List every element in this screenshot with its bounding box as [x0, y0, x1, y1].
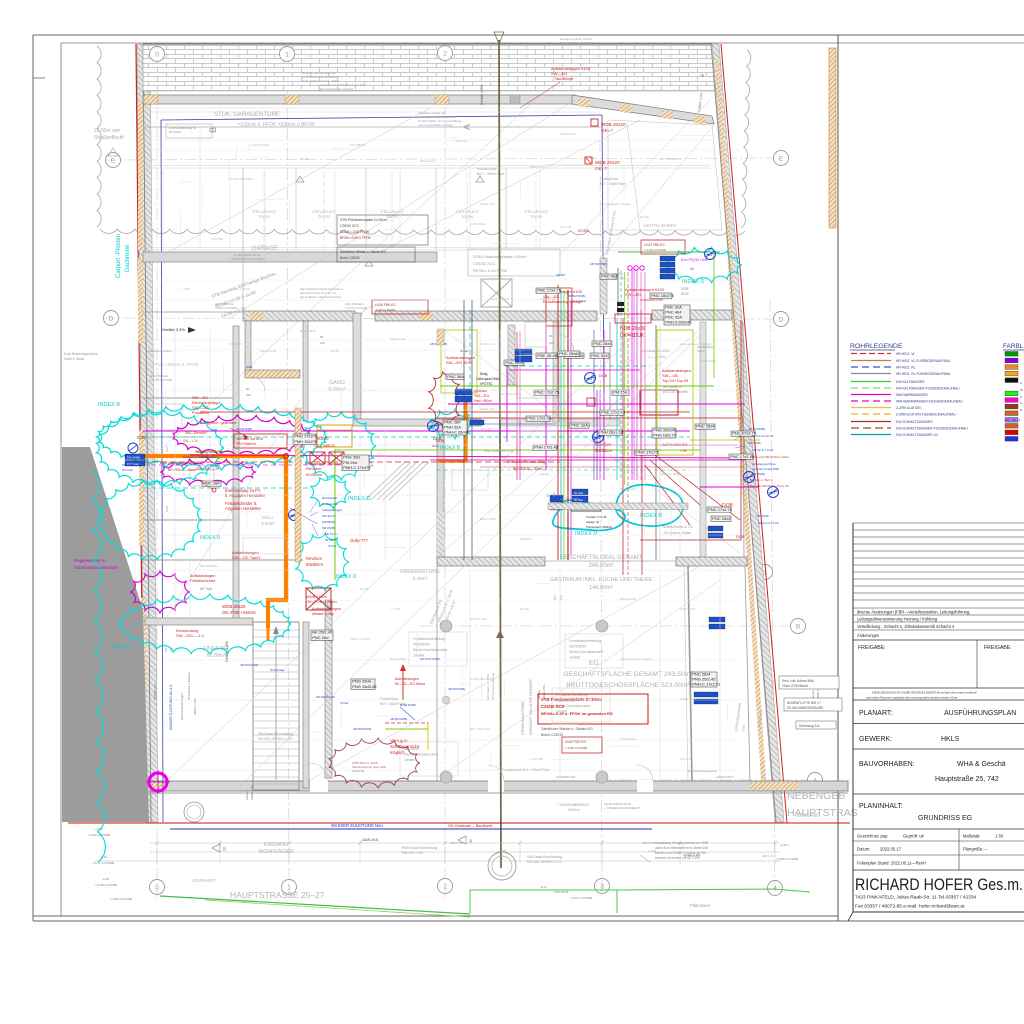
svg-text:INDEX D: INDEX D	[336, 574, 357, 580]
svg-text:BFOK=-0.00 u. FFOK: BFOK=-0.00 u. FFOK	[340, 236, 372, 240]
svg-text:GRUNDRISS EG: GRUNDRISS EG	[918, 815, 972, 822]
svg-text:DCB: DCB	[736, 534, 745, 539]
svg-text:S1: S1	[771, 491, 775, 495]
svg-text:AB Top xx: AB Top xx	[325, 532, 338, 536]
svg-text:B-ex PS(?)D I-Unk: B-ex PS(?)D I-Unk	[681, 258, 708, 262]
svg-text:INDEX B: INDEX B	[98, 402, 120, 408]
svg-text:Top.03+Top.05: Top.03+Top.05	[662, 378, 689, 383]
svg-text:AR Top0: AR Top0	[200, 587, 212, 591]
svg-text:TOP04: TOP04	[461, 215, 473, 219]
svg-text:#100: #100	[432, 444, 439, 448]
svg-text:Änderungen: Änderungen	[857, 633, 880, 638]
svg-text:=-0.57 zu P1000: =-0.57 zu P1000	[570, 896, 592, 900]
svg-text:80: 80	[320, 335, 324, 339]
svg-text:SW-SCHMUTZWASSER: SW-SCHMUTZWASSER	[896, 420, 933, 424]
svg-text:S: S	[1020, 395, 1022, 399]
svg-text:SW—Kanal Ø #150: SW—Kanal Ø #150	[484, 449, 514, 453]
svg-text:2069: 2069	[246, 365, 253, 369]
svg-text:Dämmung 14c: Dämmung 14c	[799, 724, 820, 728]
svg-text:Rohrbelüfter: Rohrbelüfter	[322, 496, 337, 500]
svg-text:BxT = 40cm/70cm: BxT = 40cm/70cm	[477, 172, 505, 176]
svg-text:DOB: DOB	[681, 287, 689, 291]
svg-text:Z-ZIRKULATION: Z-ZIRKULATION	[896, 406, 921, 410]
svg-text:Lüftungsanl 5&M: Lüftungsanl 5&M	[476, 377, 500, 381]
svg-text:+2cm horizontaler Lüftung: +2cm horizontaler Lüftung	[318, 87, 353, 91]
svg-text:Z-ZIRKULATION-FUSSBODENAUFBAU: Z-ZIRKULATION-FUSSBODENAUFBAU	[896, 412, 956, 416]
svg-text:Pflanzbeet: Pflanzbeet	[690, 903, 711, 908]
svg-text:200: 200	[246, 393, 251, 397]
svg-text:+ STREIFENFUNDAMENT: + STREIFENFUNDAMENT	[229, 257, 265, 261]
svg-text:SW—EG: SW—EG	[474, 394, 489, 398]
svg-text:VK-Gebäude – Bauflucht: VK-Gebäude – Bauflucht	[448, 823, 493, 828]
svg-text:=-0.45 zu P1000: =-0.45 zu P1000	[150, 378, 172, 382]
svg-text:K: K	[1020, 381, 1022, 385]
svg-text:AB SM B DN(B): AB SM B DN(B)	[420, 657, 440, 661]
svg-text:FARBL: FARBL	[1003, 343, 1024, 350]
svg-text:HW 0.15: HW 0.15	[762, 854, 773, 858]
svg-text:Jordahl: Jordahl	[404, 758, 415, 762]
svg-text:OK=?: OK=?	[595, 166, 607, 171]
svg-text:Verteilleitung , Schacht 1, Zi: Verteilleitung , Schacht 1, Zirkulations…	[857, 624, 955, 629]
svg-text:lt. Angaben Hersteller: lt. Angaben Hersteller	[225, 493, 266, 498]
svg-text:AB SM DN100: AB SM DN100	[353, 727, 372, 731]
svg-text:<—— 1.5%: <—— 1.5%	[648, 355, 665, 359]
svg-text:SM DN(B): SM DN(B)	[748, 441, 761, 445]
svg-text:+-0.00 FBK: +-0.00 FBK	[620, 359, 633, 363]
svg-text:PNC 16x275: PNC 16x275	[651, 293, 674, 298]
svg-text:C25/30 XC3: C25/30 XC3	[473, 261, 496, 266]
svg-text:AB SM DN(B): AB SM DN(B)	[236, 427, 252, 431]
svg-text:Verzug unter SM 02 Dom. H Bauf: Verzug unter SM 02 Dom. H Bauf.	[750, 455, 789, 459]
svg-text:570: 570	[559, 595, 563, 600]
svg-text:Aspigs: 43: Aspigs: 43	[586, 520, 600, 524]
svg-text:PNC 26x4: PNC 26x4	[593, 341, 612, 346]
svg-text:2: 2	[443, 50, 447, 57]
svg-text:Anweg Aller SM OK Top TG A u O: Anweg Aller SM OK Top TG A u OK	[748, 484, 789, 488]
svg-text:?.05: ?.05	[680, 449, 687, 453]
svg-text:OK=FOK+346cm: OK=FOK+346cm	[222, 610, 256, 615]
svg-text:Gefälle 2.0%: Gefälle 2.0%	[480, 84, 484, 105]
svg-text:PM 25d: PM 25d	[613, 390, 627, 395]
svg-text:NDB 20x30: NDB 20x30	[620, 326, 646, 332]
svg-text:2: 2	[443, 883, 447, 890]
svg-text:Gefälle 3.3%: Gefälle 3.3%	[162, 327, 185, 332]
svg-text:Schmutzwasserkanal?: Schmutzwasserkanal?	[74, 565, 118, 570]
svg-text:RFOK=-0.20 FFOK: RFOK=-0.20 FFOK	[473, 268, 508, 273]
svg-text:+ STREIFENFUNDAMENT: + STREIFENFUNDAMENT	[604, 806, 640, 810]
svg-text:KW-KALTWASSER: KW-KALTWASSER	[896, 380, 925, 384]
svg-text:Schüttung nicht: Schüttung nicht	[390, 744, 420, 749]
svg-text:60x60cm: 60x60cm	[306, 562, 324, 567]
svg-text:WASSER ZULEITUNG Neu: WASSER ZULEITUNG Neu	[331, 823, 383, 828]
svg-text:GAS #10: GAS #10	[362, 837, 379, 842]
svg-text:Hauptstraße 25, 742: Hauptstraße 25, 742	[935, 776, 999, 783]
svg-text:Knick in Wand: Knick in Wand	[64, 357, 84, 361]
svg-text:SM DN(B): SM DN(B)	[752, 472, 765, 476]
svg-text:ca. 500x100x100cm: ca. 500x100x100cm	[230, 177, 253, 181]
svg-text:Frostschürze: Frostschürze	[600, 177, 619, 181]
svg-text:PNH 19/2.75: PNH 19/2.75	[653, 432, 677, 437]
svg-text:INDEX D: INDEX D	[112, 645, 133, 651]
svg-text:Praxismaps: 150kg/h: Praxismaps: 150kg/h	[586, 525, 613, 529]
svg-text:Decke Durchstanzbew.: Decke Durchstanzbew.	[404, 753, 439, 757]
svg-text:PNC 17x2.75: PNC 17x2.75	[535, 390, 560, 395]
svg-text:20cm STB-Wand: 20cm STB-Wand	[782, 684, 808, 688]
svg-text:=-0.45 zu P1000: =-0.45 zu P1000	[490, 297, 510, 301]
svg-text:HKLS: HKLS	[941, 736, 960, 743]
svg-text:Beton C25/30: Beton C25/30	[300, 329, 316, 333]
svg-text:BL Dom. u. Berl. C: BL Dom. u. Berl. C	[750, 478, 773, 482]
svg-text:9.45m²: 9.45m²	[413, 576, 428, 581]
svg-text:KW-KALTWASSER-FUSSBODENAUFBAU: KW-KALTWASSER-FUSSBODENAUFBAU	[896, 386, 960, 390]
svg-text:BK=RDUK—30cm: BK=RDUK—30cm	[168, 468, 196, 472]
svg-text:PNC 25x4: PNC 25x4	[696, 424, 715, 429]
svg-text:DN 100: DN 100	[640, 215, 649, 219]
svg-text:RDUK=-0.00 FFOK: RDUK=-0.00 FFOK	[340, 230, 370, 234]
svg-text:GASTRAUM INKL. KÜCHE UND THEKE: GASTRAUM INKL. KÜCHE UND THEKE	[550, 576, 652, 583]
svg-text:-0.16: -0.16	[102, 877, 109, 881]
svg-text:ca. 500x100x100cm: ca. 500x100x100cm	[520, 352, 543, 356]
svg-text:WDB 20x20: WDB 20x20	[601, 122, 626, 127]
svg-text:ca. 500x100x100cm: ca. 500x100x100cm	[470, 677, 493, 681]
svg-text:Straßenflucht: Straßenflucht	[94, 135, 124, 141]
svg-text:Bayktrag Schale 90: Bayktrag Schale 90	[196, 450, 222, 454]
svg-text:=-0.69: =-0.69	[648, 849, 656, 853]
svg-text:MÜLL: MÜLL	[262, 514, 275, 520]
svg-text:PNH-C 17x3.73: PNH-C 17x3.73	[692, 681, 721, 686]
svg-text:50x50cm: 50x50cm	[306, 472, 323, 477]
svg-text:SM DN(B): SM DN(B)	[322, 526, 335, 530]
svg-text:±0.00 FBK-EG: ±0.00 FBK-EG	[644, 243, 665, 247]
svg-text:0: 0	[155, 884, 159, 891]
svg-text:Frostschürze: Frostschürze	[380, 697, 399, 701]
svg-text:WDB 20x20: WDB 20x20	[222, 604, 246, 609]
svg-text:45 SM D: 45 SM D	[325, 538, 336, 542]
svg-text:Technik #100 nach Zuluft: Technik #100 nach Zuluft	[560, 41, 591, 45]
svg-text:SM DN(B): SM DN(B)	[756, 514, 769, 518]
svg-text:200: 200	[549, 341, 554, 345]
svg-text:Carport -Pfosten: Carport -Pfosten	[116, 234, 122, 278]
svg-text:S5: S5	[708, 253, 712, 257]
svg-text:+-0.00 FBK: +-0.00 FBK	[210, 237, 223, 241]
svg-text:FREIGABE:: FREIGABE:	[858, 645, 886, 651]
svg-text:=-0.49 zu P1080: =-0.49 zu P1080	[95, 883, 117, 887]
svg-text:Gefälle 2.5%: Gefälle 2.5%	[250, 784, 254, 800]
svg-text:HUK FBK-EG: HUK FBK-EG	[350, 143, 366, 147]
svg-text:045 FFOK: 045 FFOK	[230, 342, 242, 346]
svg-text:-0.11 z: -0.11 z	[780, 843, 789, 847]
svg-text:D: D	[109, 315, 114, 322]
svg-text:7423 PINKAFELD, Julius-Raab-St: 7423 PINKAFELD, Julius-Raab-Str. 11 Tel.…	[855, 895, 976, 901]
svg-text:W: W	[1020, 388, 1023, 392]
svg-text:PNC 36A: PNC 36A	[447, 374, 464, 379]
svg-text:PN UNMD: PN UNMD	[127, 456, 140, 460]
svg-text:-0.08 FFOK: -0.08 FFOK	[553, 890, 569, 894]
svg-text:SW-KS=-1.40: SW-KS=-1.40	[560, 132, 576, 136]
svg-text:diverse Änderungen (FBH—Vertei: diverse Änderungen (FBH—Verteilerpositio…	[857, 610, 970, 615]
svg-text:ROHRLEGENDE: ROHRLEGENDE	[850, 343, 903, 350]
svg-text:S: S	[1020, 401, 1022, 405]
svg-text:-0.17: -0.17	[540, 885, 547, 889]
svg-text:zu 1.OG verzieh: zu 1.OG verzieh	[663, 390, 688, 394]
svg-text:A: A	[462, 124, 472, 130]
svg-text:Anpassung Gehweg bereits vor H: Anpassung Gehweg bereits vor HS29	[655, 841, 709, 845]
svg-text:ZU NACHBARGEBÄUDE: ZU NACHBARGEBÄUDE	[787, 706, 823, 710]
svg-text:=310cm ü. FFOK =330cm ü BFOK: =310cm ü. FFOK =330cm ü BFOK	[238, 122, 315, 128]
svg-text:BL Top G.A D US: BL Top G.A D US	[752, 434, 774, 438]
svg-text:Revision: Revision	[306, 556, 323, 561]
svg-text:Kabelnetzschalter: Kabelnetzschalter	[148, 349, 172, 353]
svg-text:AB SM DN 100: AB SM DN 100	[316, 695, 335, 699]
svg-text:#POTSC: #POTSC	[480, 382, 493, 386]
svg-text:+2cm horizontaler Lüftung: +2cm horizontaler Lüftung	[418, 123, 453, 127]
svg-text:=-0.45 zu P1000: =-0.45 zu P1000	[565, 746, 587, 750]
svg-text:RDUK=+3.06: RDUK=+3.06	[390, 337, 406, 341]
svg-text:DN 150: DN 150	[330, 349, 339, 353]
svg-text:1667: 1667	[165, 445, 169, 452]
svg-text:Revision: Revision	[306, 466, 321, 471]
svg-text:=325cm ü. FFOK: =325cm ü. FFOK	[350, 637, 370, 641]
svg-text:IS Nax: IS Nax	[328, 544, 337, 548]
svg-text:2022.05.17: 2022.05.17	[880, 847, 902, 852]
svg-text:SW-Kanal Einmündung: SW-Kanal Einmündung	[258, 732, 293, 736]
svg-text:CD/CFTB: CD/CFTB	[352, 769, 364, 773]
svg-text:95: 95	[546, 493, 550, 497]
svg-text:PNH-3 26/G45: PNH-3 26/G45	[665, 319, 692, 324]
svg-text:HAUPTSTRASSE 25–27: HAUPTSTRASSE 25–27	[230, 890, 325, 900]
svg-text:Obenbau uml #100: Obenbau uml #100	[236, 437, 263, 441]
svg-text:Aufstan: Aufstan	[474, 389, 487, 393]
svg-text:J.B. Knast a. Erläse: J.B. Knast a. Erläse	[663, 531, 691, 535]
svg-text:045 FFOK: 045 FFOK	[450, 841, 463, 845]
svg-text:±0.06 FBK-EG: ±0.06 FBK-EG	[375, 303, 396, 307]
svg-text:BxT = 40cm/70cm: BxT = 40cm/70cm	[660, 157, 681, 161]
svg-text:2x 5x5 Staffel: 2x 5x5 Staffel	[620, 737, 636, 741]
svg-text:SW—EG #100: SW—EG #100	[446, 360, 473, 365]
svg-text:0: 0	[155, 51, 159, 58]
svg-text:STELLPLATZ: STELLPLATZ	[524, 210, 548, 214]
svg-text:Beton C25/30: Beton C25/30	[340, 256, 360, 260]
svg-text:Hsn.+Börn: Hsn.+Börn	[474, 399, 492, 403]
svg-text:DIESE ZEICHNUNG IST UNSER GEIS: DIESE ZEICHNUNG IST UNSER GEISTIGES EIGE…	[872, 691, 977, 695]
svg-text:045 FFOK: 045 FFOK	[455, 139, 467, 143]
svg-text:HUK FBK-EG: HUK FBK-EG	[540, 297, 556, 301]
svg-text:SW-Kanal Einmündung: SW-Kanal Einmündung	[527, 855, 562, 859]
svg-text:=-0.56 zu P1000: =-0.56 zu P1000	[110, 897, 132, 901]
svg-text:Gefälle 2.5%: Gefälle 2.5%	[684, 854, 701, 858]
svg-text:SW—KS=—1.25: SW—KS=—1.25	[178, 461, 198, 465]
svg-text:Ø SM DN(B): Ø SM DN(B)	[400, 703, 416, 707]
svg-text:AB SM DN(B): AB SM DN(B)	[448, 687, 465, 691]
svg-text:INDEX D: INDEX D	[200, 535, 221, 541]
svg-text:=-0.45 zu P1000: =-0.45 zu P1000	[345, 306, 367, 310]
svg-text:INDEX D: INDEX D	[575, 531, 597, 537]
svg-text:Revision: Revision	[595, 442, 612, 447]
svg-text:* AUSSENBEREICH: * AUSSENBEREICH	[558, 803, 590, 807]
svg-text:RDUK=+3.06: RDUK=+3.06	[420, 159, 436, 163]
svg-text:UK=-1.30: UK=-1.30	[560, 225, 572, 229]
svg-text:Putzstück: Putzstück	[192, 410, 209, 415]
svg-text:RW-Kanal Einmündung: RW-Kanal Einmündung	[402, 846, 437, 850]
svg-text:=-0.45 zu P1000: =-0.45 zu P1000	[250, 143, 270, 147]
svg-text:DOB: DOB	[722, 503, 734, 509]
svg-text:damit 8cm Höhendifferenz überb: damit 8cm Höhendifferenz überbrückt	[655, 846, 708, 850]
svg-text:STUK.=325cm ü. FFOK: STUK.=325cm ü. FFOK	[152, 362, 199, 367]
svg-text:Angaben Hersteller: Angaben Hersteller	[225, 506, 261, 511]
svg-text:Gehweg: Gehweg	[245, 790, 249, 800]
svg-text:WHA & Geschä: WHA & Geschä	[957, 761, 1006, 768]
svg-text:DN 150: DN 150	[520, 607, 529, 611]
svg-text:PLANINHALT:: PLANINHALT:	[859, 803, 903, 810]
svg-text:OK=RDUK: OK=RDUK	[620, 333, 645, 339]
svg-text:Lüftungsanlage lt. Angaben: Lüftungsanlage lt. Angaben	[680, 342, 712, 346]
svg-text:STB-Decke ü. BG/Gar.: STB-Decke ü. BG/Gar.	[187, 671, 191, 700]
svg-text:Gefälle 1.5%: Gefälle 1.5%	[480, 202, 496, 206]
svg-text:DN 150: DN 150	[300, 157, 309, 161]
svg-text:PNC 17x2.43: PNC 17x2.43	[527, 416, 552, 421]
svg-text:SB: SB	[596, 436, 601, 440]
svg-text:<-- 1.5%: <-- 1.5%	[390, 607, 401, 611]
svg-text:-0.45 zu P1000: -0.45 zu P1000	[375, 308, 396, 312]
svg-text:BK/BSE Lias: BK/BSE Lias	[153, 683, 157, 700]
svg-text:PNH 26x1.16: PNH 26x1.16	[599, 430, 624, 435]
svg-text:GESCHÄFTSLOKAL GESAMT: GESCHÄFTSLOKAL GESAMT	[560, 554, 643, 561]
svg-text:Beton C25/30: Beton C25/30	[541, 733, 563, 737]
svg-text:PK DN(B): PK DN(B)	[122, 463, 134, 467]
svg-text:STELLPLATZ: STELLPLATZ	[380, 210, 404, 214]
svg-text:INDEX D: INDEX D	[640, 513, 662, 519]
svg-text:C25/30 XC3: C25/30 XC3	[340, 224, 359, 228]
svg-text:Schiebl?kodes in Tro: Schiebl?kodes in Tro	[663, 525, 693, 529]
svg-text:Fundamentvertiefung: Fundamentvertiefung	[569, 639, 601, 643]
svg-text:3.00m²: 3.00m²	[261, 521, 276, 526]
svg-text:146.00m²: 146.00m²	[589, 585, 613, 591]
svg-text:SW—EG: SW—EG	[551, 71, 567, 76]
svg-text:HR-HEIZ. VL-FUSSBODENAUFBAU: HR-HEIZ. VL-FUSSBODENAUFBAU	[896, 359, 951, 363]
svg-text:PLANART:: PLANART:	[859, 710, 892, 717]
svg-text:Tauchtkörper: Tauchtkörper	[555, 77, 574, 81]
svg-text:Beton C25/30: Beton C25/30	[390, 657, 406, 661]
svg-text:PNG 17d.75: PNG 17d.75	[636, 450, 659, 455]
svg-text:Gefälle 1.5%: Gefälle 1.5%	[480, 407, 496, 411]
svg-text:WOHNUNGEN: WOHNUNGEN	[258, 849, 293, 855]
svg-text:045 FFOK: 045 FFOK	[520, 537, 532, 541]
svg-text:STELLPLATZ: STELLPLATZ	[312, 210, 336, 214]
svg-text:Ablauf Gully: Ablauf Gully	[312, 611, 334, 616]
svg-text:GEWERK:: GEWERK:	[859, 736, 892, 743]
svg-text:SW-SCHMUTZWASSER-LÜ: SW-SCHMUTZWASSER-LÜ	[896, 433, 939, 437]
svg-text:SCHIEBETÜR: SCHIEBETÜR	[556, 775, 576, 779]
svg-text:UK=-1.30: UK=-1.30	[680, 757, 692, 761]
svg-text:WW-WARMWASSER: WW-WARMWASSER	[896, 393, 928, 397]
svg-text:FREIGABE:: FREIGABE:	[984, 645, 1012, 651]
svg-text:IS Nax: IS Nax	[460, 349, 469, 353]
svg-text:FFOK=+3.76: FFOK=+3.76	[680, 607, 696, 611]
svg-text:310: 310	[169, 647, 173, 652]
svg-text:WDB 20x20: WDB 20x20	[595, 160, 620, 165]
svg-text:Gully ???: Gully ???	[350, 538, 368, 543]
svg-text:18.50m²: 18.50m²	[568, 808, 580, 812]
svg-text:PNC 17x2.43: PNC 17x2.43	[601, 410, 626, 415]
svg-text:GANG: GANG	[329, 380, 345, 386]
svg-text:<-- 1.5%: <-- 1.5%	[180, 287, 191, 291]
svg-text:BxT = 40cm/70cm: BxT = 40cm/70cm	[470, 727, 491, 731]
svg-text:=-0.38: =-0.38	[498, 849, 506, 853]
svg-text:=-0.47 zu P1000: =-0.47 zu P1000	[92, 861, 114, 865]
svg-text:PNG 15d3.45: PNG 15d3.45	[352, 684, 377, 689]
svg-text:#100: #100	[681, 292, 689, 296]
svg-text:=325cm ü. FFOK: =325cm ü. FFOK	[660, 472, 680, 476]
svg-text:Datum:: Datum:	[857, 847, 871, 852]
svg-text:Leitungsdimensionierung Heizun: Leitungsdimensionierung Heizung / Kühlun…	[857, 617, 938, 622]
svg-text:D: D	[779, 316, 784, 323]
svg-text:EO.300: EO.300	[578, 229, 589, 233]
svg-text:200: 200	[320, 341, 325, 345]
svg-text:Geprüft: ulr: Geprüft: ulr	[903, 834, 925, 839]
svg-text:E: E	[779, 155, 784, 162]
svg-text:DN 150; SW-KS=-1.72: DN 150; SW-KS=-1.72	[258, 737, 292, 741]
svg-text:DN 100: DN 100	[360, 587, 369, 591]
svg-text:PNH-C 26/4B: PNH-C 26/4B	[444, 429, 469, 434]
svg-text:PNC 26d: PNC 26d	[312, 635, 328, 640]
svg-text:Sämtlicher Wände u. Säulen EG: Sämtlicher Wände u. Säulen EG	[340, 250, 386, 254]
svg-text:STB-Prüfdimensplatte D=25cm: STB-Prüfdimensplatte D=25cm	[340, 218, 387, 222]
svg-text:RW-Kanal tiefer legen: RW-Kanal tiefer legen	[180, 692, 184, 720]
svg-text:IS Schirkas: IS Schirkas	[270, 668, 285, 672]
svg-text:Beton C25/30: Beton C25/30	[480, 517, 496, 521]
svg-text:TOP02: TOP02	[318, 215, 330, 219]
svg-text:Aufstabsbogen: Aufstabsbogen	[395, 677, 419, 681]
svg-text:DCB: DCB	[433, 436, 442, 441]
svg-text:=325cm ü. FFOK: =325cm ü. FFOK	[230, 287, 250, 291]
svg-text:246.00m²: 246.00m²	[588, 563, 613, 569]
svg-text:SW-KS=-1.40: SW-KS=-1.40	[470, 617, 486, 621]
svg-text:BODENPLATTE BIS 1?: BODENPLATTE BIS 1?	[787, 701, 821, 705]
svg-text:SW—EG: SW—EG	[625, 292, 641, 297]
svg-text:FETTABSCH.: FETTABSCH.	[200, 564, 219, 568]
svg-text:PMH-C 17x375: PMH-C 17x375	[343, 465, 371, 470]
svg-text:Plangröße: –: Plangröße: –	[963, 847, 988, 852]
svg-text:870: 870	[553, 595, 557, 600]
svg-text:Lüftungsanlage lt. Angaben: Lüftungsanlage lt. Angaben	[620, 657, 652, 661]
svg-text:BL Top G.7 A US: BL Top G.7 A US	[758, 521, 779, 525]
svg-text:FFOK=+3.76: FFOK=+3.76	[480, 342, 496, 346]
svg-text:#6: #6	[690, 267, 694, 271]
svg-text:INDEX D: INDEX D	[348, 496, 370, 502]
svg-text:<-- 1.5%: <-- 1.5%	[600, 467, 611, 471]
svg-text:BFOK=-0.20 u. FFOK im gesamten: BFOK=-0.20 u. FFOK im gesamten EG	[541, 711, 613, 716]
svg-text:HR-HEIZ. VL: HR-HEIZ. VL	[896, 352, 915, 356]
svg-text:Dachrinne: Dachrinne	[125, 244, 131, 272]
svg-text:W—FA—EG Malot: W—FA—EG Malot	[395, 682, 425, 686]
svg-text:BK=RDUK—30cm: BK=RDUK—30cm	[513, 467, 542, 471]
svg-text:250/250/50: 250/250/50	[413, 643, 430, 647]
svg-text:EINGANG: EINGANG	[264, 842, 288, 848]
svg-text:Gefälle 1.5%: Gefälle 1.5%	[680, 697, 696, 701]
svg-text:Maßstab:: Maßstab:	[963, 834, 980, 839]
svg-text:Aufstabsbogen: Aufstabsbogen	[190, 574, 215, 578]
svg-text:WASSER ZULEITUNG UK=-1.3: WASSER ZULEITUNG UK=-1.3	[169, 684, 173, 730]
svg-text:Frostschürze: Frostschürze	[477, 167, 497, 171]
svg-text:1 50: 1 50	[995, 834, 1004, 839]
svg-text:AB SM DN(B): AB SM DN(B)	[748, 427, 765, 431]
svg-text:BxT = 40cm/70cm: BxT = 40cm/70cm	[600, 182, 626, 186]
svg-text:+-0.00 FBK: +-0.00 FBK	[530, 757, 543, 761]
svg-text:Stromanschlusskasten: Stromanschlusskasten	[687, 769, 718, 773]
svg-text:SW-Kanal EG #150: SW-Kanal EG #150	[640, 349, 670, 353]
svg-text:AB SM DN(B): AB SM DN(B)	[390, 717, 407, 721]
svg-text:3: 3	[600, 883, 604, 890]
